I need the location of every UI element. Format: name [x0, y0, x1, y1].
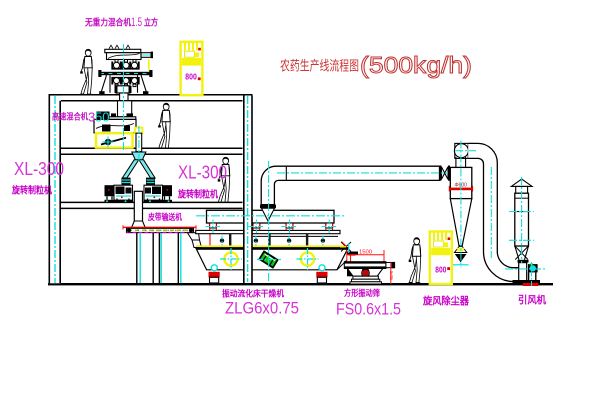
svg-text:农药生产线流程图: 农药生产线流程图 — [280, 59, 359, 74]
svg-text:旋转制粒机: 旋转制粒机 — [11, 185, 52, 197]
svg-text:旋转制粒机: 旋转制粒机 — [177, 189, 218, 201]
svg-text:545: 545 — [389, 271, 394, 281]
svg-text:高速混合机: 高速混合机 — [52, 112, 88, 122]
svg-text:振动流化床干燥机: 振动流化床干燥机 — [222, 289, 284, 299]
svg-text:XL-300: XL-300 — [178, 163, 227, 183]
svg-text:旋风除尘器: 旋风除尘器 — [422, 295, 470, 308]
svg-text:1.5: 1.5 — [131, 15, 142, 29]
svg-text:XL-300: XL-300 — [14, 159, 64, 179]
svg-text:方形振动筛: 方形振动筛 — [344, 288, 380, 298]
svg-text:ZLG6x0.75: ZLG6x0.75 — [225, 299, 299, 318]
svg-text:引风机: 引风机 — [518, 294, 546, 307]
svg-text:1500: 1500 — [359, 250, 372, 256]
svg-text:(500kg/h): (500kg/h) — [360, 52, 472, 78]
svg-text:立方: 立方 — [144, 17, 158, 28]
svg-text:无重力混合机: 无重力混合机 — [84, 17, 131, 28]
svg-text:皮带输送机: 皮带输送机 — [147, 212, 182, 222]
svg-text:50: 50 — [95, 110, 109, 125]
svg-text:800: 800 — [435, 265, 446, 274]
svg-text:FS0.6x1.5: FS0.6x1.5 — [336, 300, 401, 319]
svg-text:800: 800 — [185, 72, 197, 81]
